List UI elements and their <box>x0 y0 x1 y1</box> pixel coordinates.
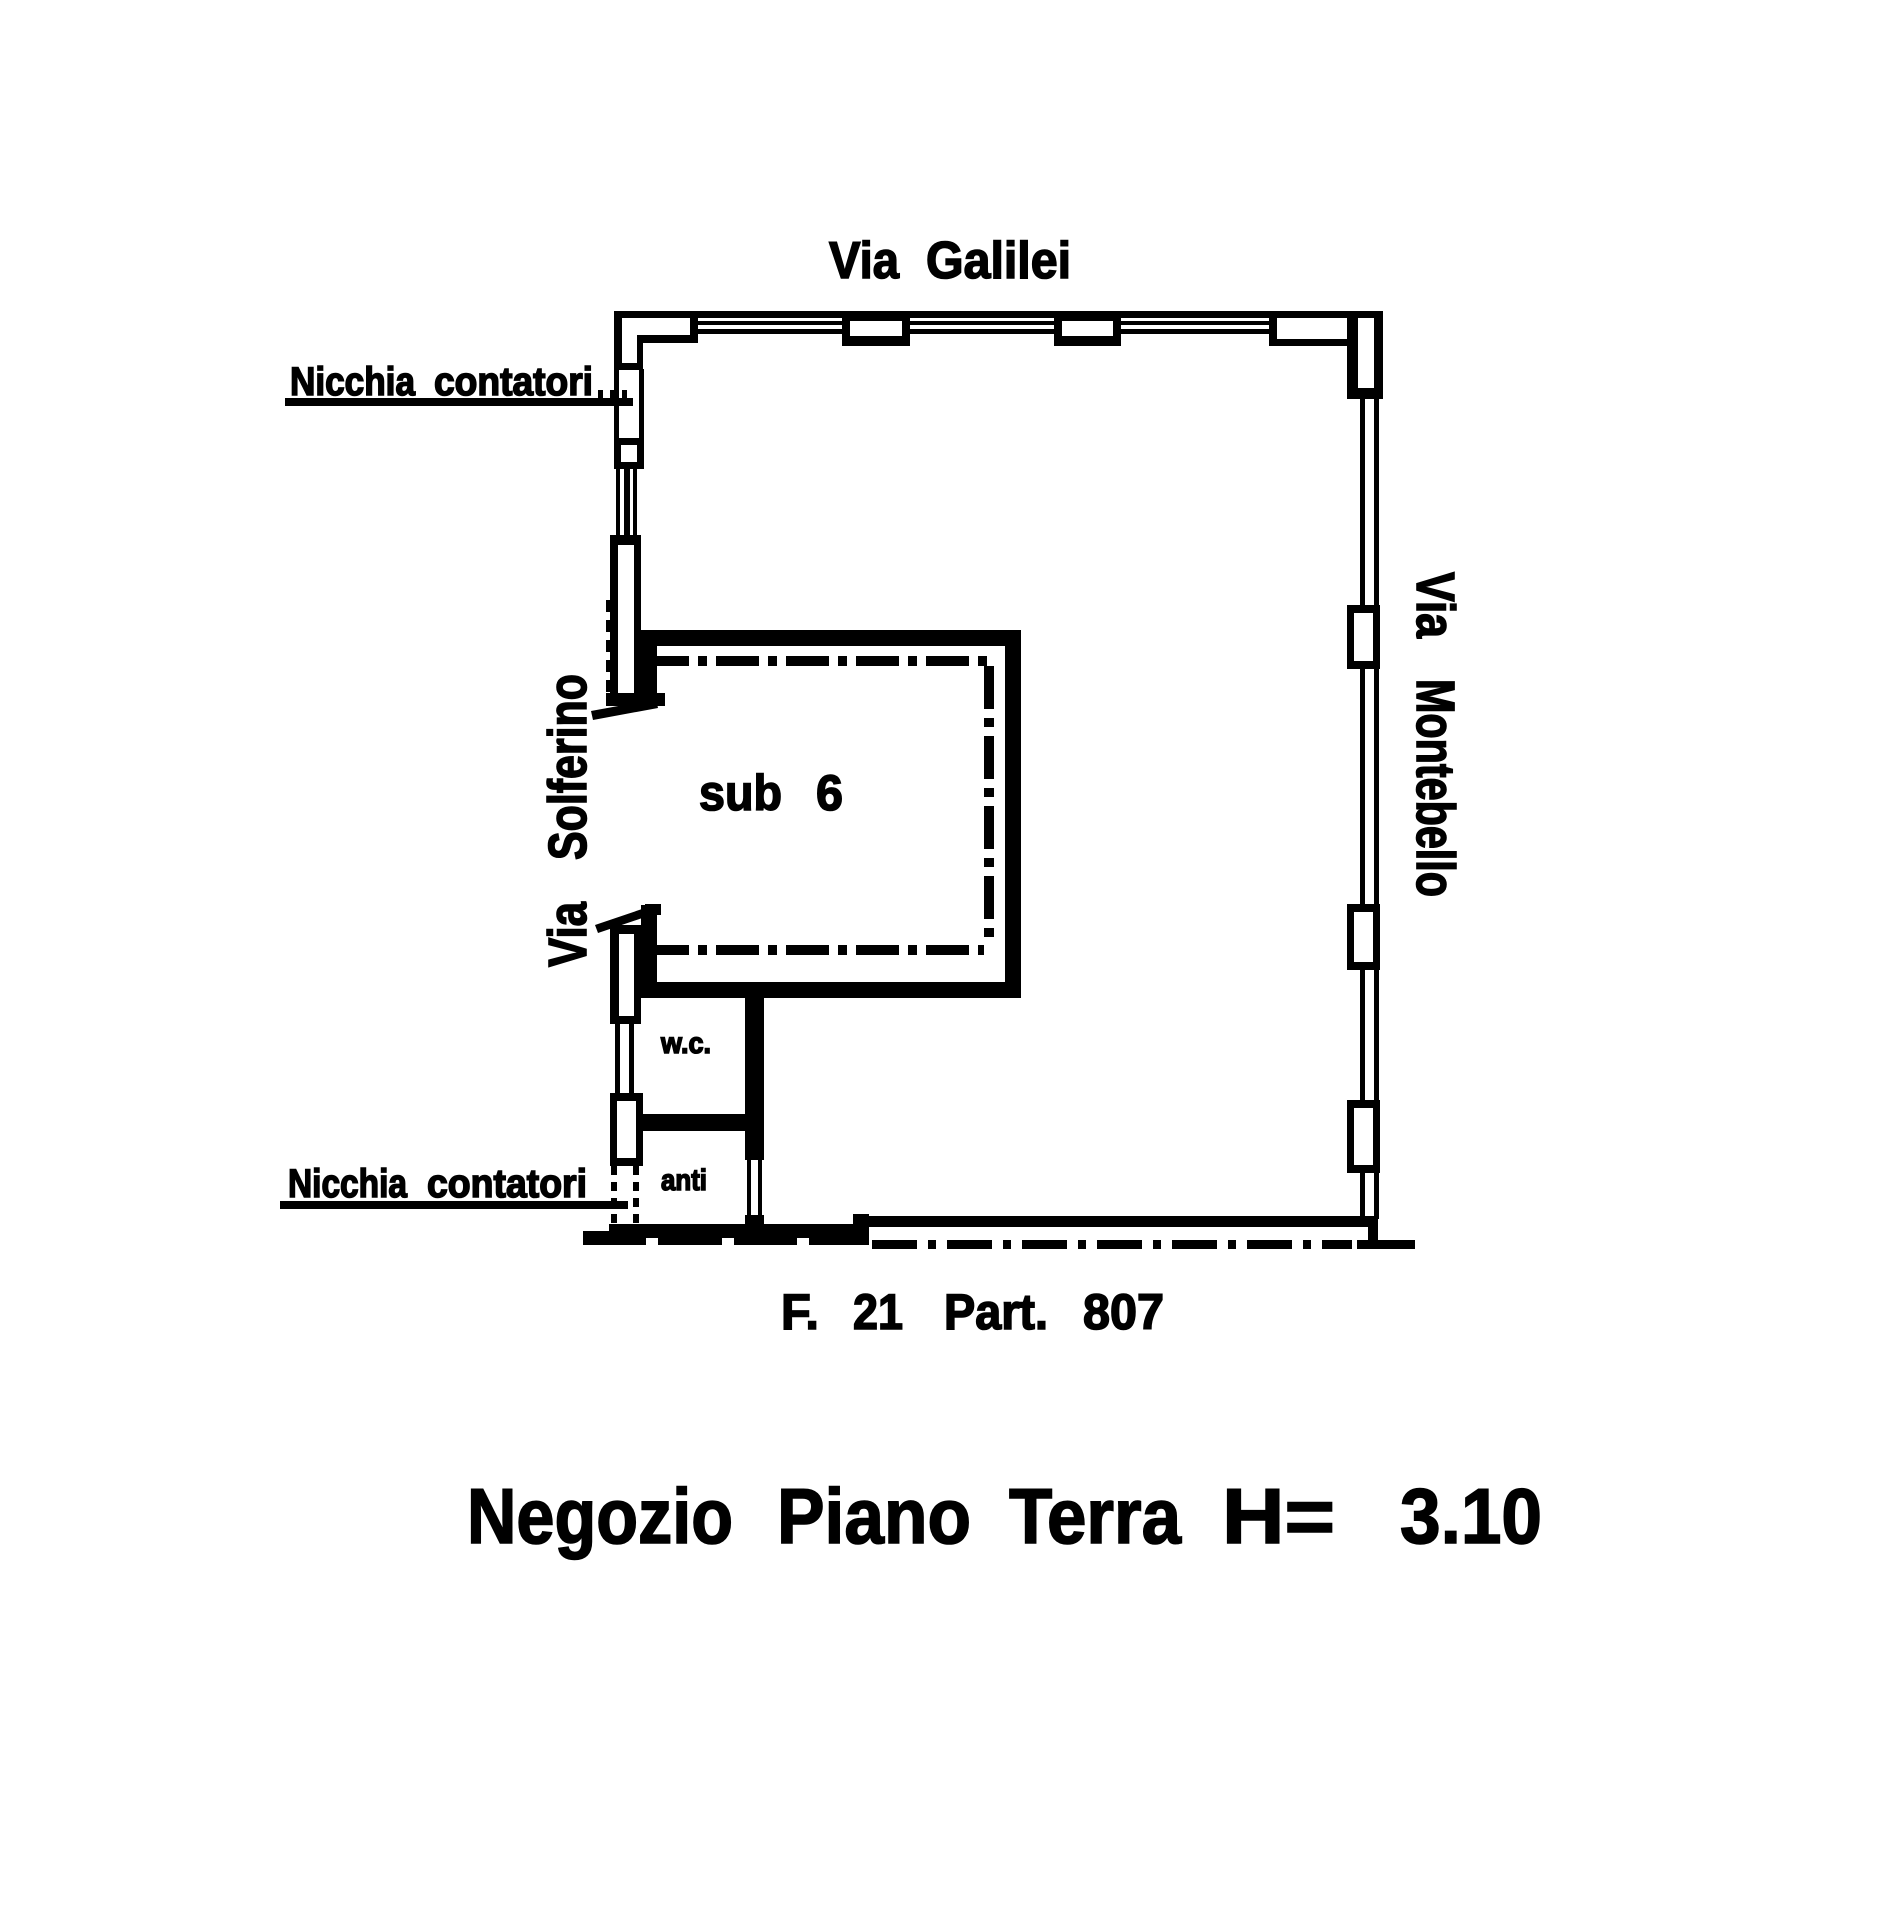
svg-text:F.: F. <box>781 1284 819 1340</box>
svg-text:H=: H= <box>1222 1472 1335 1560</box>
svg-text:807: 807 <box>1083 1284 1164 1340</box>
svg-text:Solferino: Solferino <box>538 674 598 860</box>
svg-text:3.10: 3.10 <box>1400 1472 1542 1560</box>
svg-text:contatori: contatori <box>427 1162 587 1206</box>
svg-text:Via: Via <box>538 901 598 967</box>
svg-text:Nicchia: Nicchia <box>290 360 416 404</box>
svg-text:Galilei: Galilei <box>926 232 1071 290</box>
svg-text:Piano: Piano <box>777 1472 971 1560</box>
svg-text:Nicchia: Nicchia <box>288 1162 408 1206</box>
svg-text:w.c.: w.c. <box>660 1027 711 1060</box>
svg-text:Via: Via <box>1405 572 1465 639</box>
svg-text:sub: sub <box>699 765 782 821</box>
svg-text:Via: Via <box>829 232 900 290</box>
svg-text:contatori: contatori <box>434 360 593 404</box>
svg-text:Negozio: Negozio <box>467 1472 733 1560</box>
svg-text:21: 21 <box>853 1284 903 1340</box>
svg-text:Part.: Part. <box>944 1284 1048 1340</box>
svg-text:anti: anti <box>661 1164 707 1197</box>
svg-text:Montebello: Montebello <box>1405 679 1465 897</box>
svg-text:6: 6 <box>816 765 843 821</box>
svg-text:Terra: Terra <box>1009 1472 1182 1560</box>
